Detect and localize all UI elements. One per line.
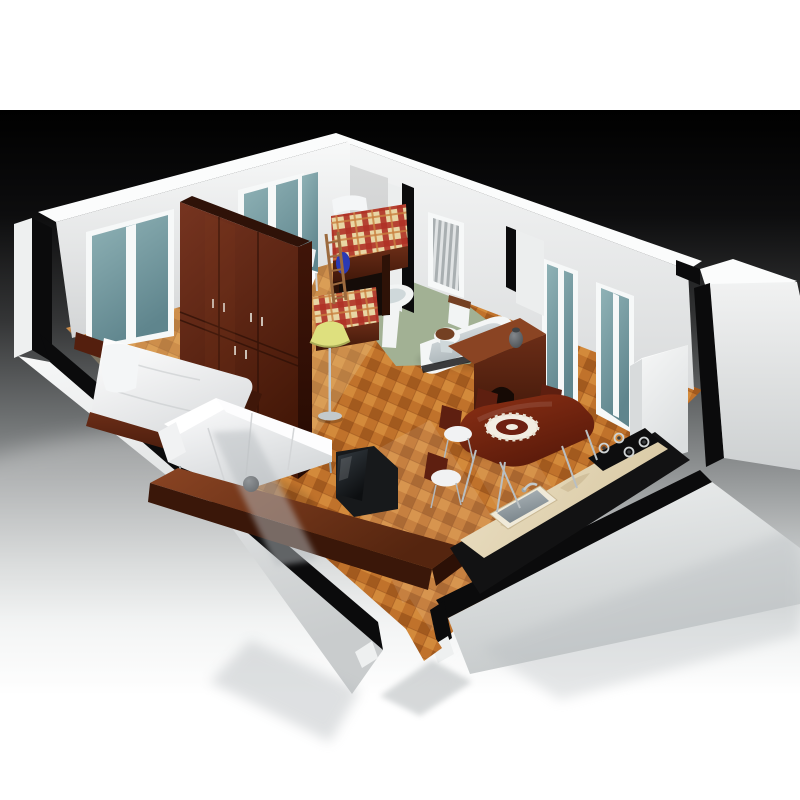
wall-face (710, 282, 800, 470)
render-canvas (0, 0, 800, 800)
wall-outer-corner (14, 218, 32, 358)
bedroom-window-mullion (126, 224, 136, 342)
bed-pillow (101, 344, 140, 393)
apartment-render (0, 0, 800, 800)
kitchen-window-mullion (613, 293, 619, 418)
doily-center (506, 424, 518, 430)
bunk-post-rear (382, 254, 390, 316)
vase-neck (512, 328, 520, 333)
vase (509, 330, 523, 348)
dining-partition-face (516, 230, 544, 316)
toilet-seat (436, 328, 455, 340)
dining-partition-cut (506, 226, 516, 292)
bathroom-window-curtain (433, 218, 459, 291)
dining-window-mullion (558, 268, 564, 400)
wall-cut-end (32, 218, 52, 362)
lamp-pole (329, 348, 332, 414)
centerpiece-doily (486, 414, 538, 440)
